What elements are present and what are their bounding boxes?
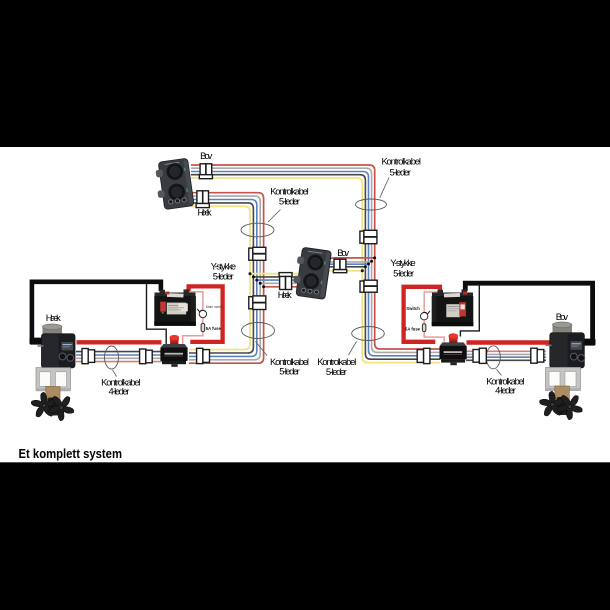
- svg-text:5-leder: 5-leder: [389, 166, 411, 177]
- svg-text:5-leder: 5-leder: [213, 270, 234, 281]
- svg-text:Kontrolkabel: Kontrolkabel: [381, 156, 421, 167]
- svg-text:Bov: Bov: [200, 150, 213, 161]
- svg-text:Hæk: Hæk: [278, 289, 292, 300]
- svg-text:Hæk: Hæk: [198, 207, 212, 218]
- svg-text:Bov: Bov: [337, 247, 349, 258]
- svg-text:Y-stykke: Y-stykke: [390, 257, 416, 268]
- svg-text:Bov: Bov: [556, 311, 569, 322]
- svg-text:5-leder: 5-leder: [279, 366, 300, 377]
- svg-text:5-leder: 5-leder: [393, 268, 414, 279]
- svg-text:5A fuse: 5A fuse: [405, 327, 421, 332]
- svg-text:Switch: Switch: [406, 306, 420, 311]
- svg-text:Main switch: Main switch: [206, 305, 224, 309]
- svg-text:5-leder: 5-leder: [326, 366, 347, 377]
- svg-text:4-leder: 4-leder: [109, 385, 130, 396]
- svg-text:5A fuse: 5A fuse: [206, 326, 222, 331]
- svg-text:5-leder: 5-leder: [279, 195, 300, 206]
- svg-text:Hæk: Hæk: [46, 312, 61, 323]
- svg-text:4-leder: 4-leder: [495, 385, 516, 396]
- svg-text:Et komplett system: Et komplett system: [19, 446, 123, 461]
